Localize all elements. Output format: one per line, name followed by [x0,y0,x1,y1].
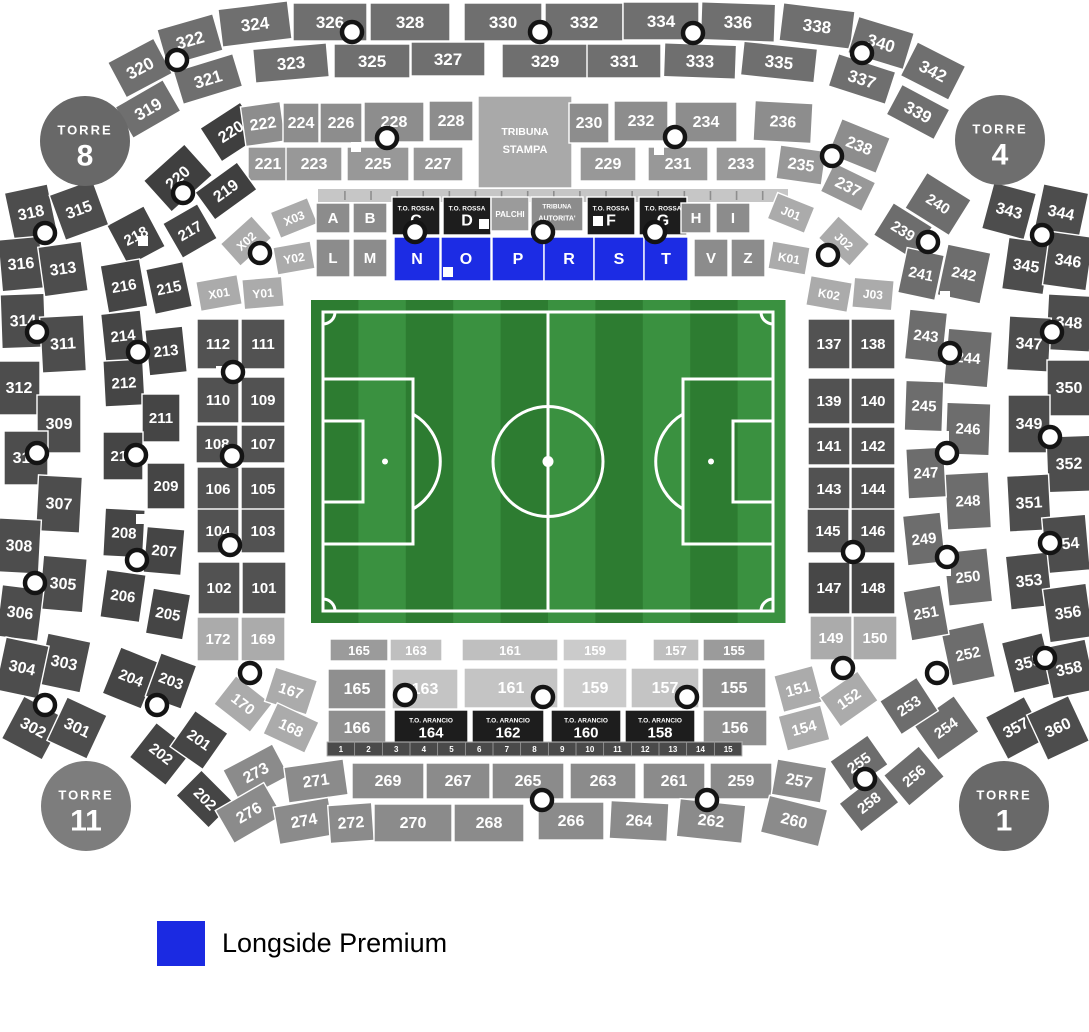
svg-text:H: H [691,210,702,227]
svg-text:TRIBUNA: TRIBUNA [501,126,549,138]
svg-text:269: 269 [375,773,402,790]
svg-text:323: 323 [276,53,306,74]
gate-marker [530,22,550,42]
svg-text:206: 206 [109,586,136,606]
section-144-147: 144 [851,467,895,511]
svg-text:327: 327 [434,50,462,69]
svg-text:110: 110 [206,392,230,409]
entrance-notch [443,267,453,277]
section-x01-121: X01 [196,275,243,312]
svg-text:311: 311 [50,335,77,353]
svg-text:234: 234 [693,114,720,131]
legend-swatch [157,921,205,966]
legend-label: Longside Premium [222,928,447,959]
section-313-68: 313 [38,241,89,297]
section-172-152: 172 [197,617,239,661]
torre-11: TORRE11 [41,761,131,851]
section-151-159: 151 [774,665,822,712]
section-222-24: 222 [240,101,285,146]
svg-text:325: 325 [358,52,386,71]
section-232-31: 232 [614,101,668,141]
svg-text:224: 224 [288,115,315,132]
gate-marker [940,343,960,363]
svg-text:159: 159 [582,680,609,697]
svg-text:248: 248 [955,492,981,510]
svg-text:308: 308 [5,537,33,555]
section-343-101: 343 [982,182,1037,240]
svg-text:TRIBUNA: TRIBUNA [542,204,572,211]
svg-text:332: 332 [570,13,598,32]
section-323-14: 323 [253,43,330,83]
section-152-160: 152 [820,671,878,727]
section-338-9: 338 [779,3,855,49]
svg-text:PALCHI: PALCHI [495,210,524,219]
svg-text:236: 236 [769,113,797,131]
svg-text:207: 207 [151,542,177,561]
section-160-197: T.O. ARANCIO160 [551,710,621,746]
section-z-181: Z [731,239,765,277]
section-235-42: 235 [776,145,826,185]
svg-text:N: N [411,251,423,268]
gate-marker [240,663,260,683]
svg-text:F: F [606,213,616,230]
svg-text:106: 106 [205,481,230,498]
section-111-129: 111 [241,319,285,369]
section-316-67: 316 [0,236,44,291]
gate-marker [852,43,872,63]
gate-marker [937,547,957,567]
section-213-51: 213 [145,326,188,376]
svg-text:233: 233 [728,156,755,173]
section-228-28: 228 [429,101,473,141]
svg-text:145: 145 [815,523,840,540]
svg-text:264: 264 [625,812,653,830]
section-245-89: 245 [904,380,944,431]
svg-text:328: 328 [396,13,424,32]
svg-text:169: 169 [250,631,275,648]
section-315-66: 315 [49,180,109,241]
entrance-notch [479,219,489,229]
svg-text:165: 165 [344,681,371,698]
section-233-41: 233 [716,147,766,181]
svg-text:316: 316 [7,255,35,274]
football-pitch [311,300,786,623]
section-106-134: 106 [197,467,239,511]
svg-text:T.O. ROSSA: T.O. ROSSA [449,206,486,213]
section-143-146: 143 [808,467,850,511]
gate-marker [220,535,240,555]
gate-marker [147,695,167,715]
svg-text:259: 259 [728,773,755,790]
section-169-153: 169 [241,617,285,661]
gate-marker [222,446,242,466]
section-139-142: 139 [808,378,850,424]
svg-text:150: 150 [862,630,887,647]
gate-marker [937,443,957,463]
gate-marker [1035,648,1055,668]
svg-text:T.O. ARANCIO: T.O. ARANCIO [564,718,608,725]
svg-text:265: 265 [515,773,542,790]
section-212-52: 212 [103,359,145,407]
svg-text:245: 245 [911,398,937,416]
section-138-141: 138 [851,319,895,369]
svg-text:349: 349 [1016,416,1043,433]
svg-text:266: 266 [558,813,585,830]
svg-text:112: 112 [206,336,230,353]
svg-text:326: 326 [316,13,344,32]
section-141-144: 141 [808,427,850,465]
section-107-133: 107 [241,425,285,463]
svg-text:209: 209 [153,478,178,495]
gate-marker [645,222,665,242]
section-331-18: 331 [587,44,661,78]
svg-text:172: 172 [205,631,230,648]
section-221-35: 221 [248,147,288,181]
svg-text:329: 329 [531,52,559,71]
gate-marker [855,769,875,789]
svg-text:335: 335 [764,52,794,74]
gate-marker [405,222,425,242]
section-257-208: 257 [771,759,826,803]
section-158-198: T.O. ARANCIO158 [625,710,695,746]
svg-text:155: 155 [723,643,745,658]
svg-text:306: 306 [6,603,35,623]
section-308-75: 308 [0,518,41,574]
entrance-notch [351,142,361,152]
svg-text:TORRE: TORRE [58,788,113,803]
svg-text:213: 213 [153,342,180,362]
svg-text:162: 162 [495,725,520,742]
svg-text:V: V [706,250,716,267]
svg-text:270: 270 [400,815,427,832]
section-164-195: T.O. ARANCIO164 [394,710,468,746]
gate-marker [533,687,553,707]
svg-text:144: 144 [860,481,886,498]
svg-text:A: A [328,210,339,227]
section-103-137: 103 [241,509,285,553]
svg-text:272: 272 [337,814,365,833]
section-150-158: 150 [853,616,897,660]
section-229-39: 229 [580,147,636,181]
svg-text:11: 11 [613,745,622,754]
svg-text:TORRE: TORRE [972,122,1027,137]
svg-text:11: 11 [70,805,102,838]
section-332-6: 332 [545,3,623,41]
section-272-211: 272 [328,803,375,844]
svg-text:351: 351 [1015,494,1043,512]
gate-marker [342,22,362,42]
section-l-172: L [316,239,350,277]
section-163-183: 163 [390,639,442,661]
svg-text:156: 156 [722,720,749,737]
svg-text:246: 246 [955,421,981,439]
gate-marker [128,342,148,362]
svg-text:7: 7 [505,745,510,754]
svg-text:105: 105 [250,481,275,498]
svg-text:P: P [513,251,524,268]
section-165-182: 165 [330,639,388,661]
svg-text:8: 8 [77,140,94,173]
section-248-90: 248 [945,472,992,530]
svg-text:2: 2 [366,745,371,754]
entrance-notch [654,145,664,155]
gate-marker [532,790,552,810]
section-360-117: 360 [1027,696,1089,761]
entrance-notch [940,291,950,301]
legend: Longside Premium [157,921,447,966]
svg-text:B: B [365,210,376,227]
svg-text:Y01: Y01 [252,286,275,302]
svg-text:1: 1 [996,805,1013,838]
section-y02-120: Y02 [273,241,315,275]
section-324-2: 324 [218,1,292,47]
gate-marker [173,183,193,203]
section-225-37: 225 [347,147,409,181]
svg-text:157: 157 [665,643,687,658]
section-206-58: 206 [100,569,146,622]
section-276-209: 276 [215,783,282,844]
svg-text:243: 243 [913,327,940,347]
section-p-176[interactable]: P [492,237,544,281]
gate-marker [533,222,553,242]
svg-text:143: 143 [816,481,841,498]
svg-text:312: 312 [6,380,33,397]
gate-marker [833,658,853,678]
svg-text:336: 336 [723,13,752,33]
svg-text:102: 102 [206,580,231,597]
svg-text:TORRE: TORRE [976,788,1031,803]
svg-text:229: 229 [595,156,622,173]
gate-marker [1040,533,1060,553]
section-165-188: 165 [328,669,386,709]
svg-text:147: 147 [816,580,841,597]
svg-text:148: 148 [860,580,885,597]
svg-text:166: 166 [344,720,371,737]
svg-text:309: 309 [46,416,73,433]
section-356-113: 356 [1042,583,1089,643]
section-159-191: 159 [563,668,627,708]
gate-marker [1042,322,1062,342]
section-d-165: T.O. ROSSAD [443,197,491,235]
section-350-107: 350 [1047,360,1089,416]
section-216-48: 216 [100,259,148,313]
svg-text:223: 223 [301,156,328,173]
svg-text:159: 159 [584,643,606,658]
section-329-17: 329 [502,44,588,78]
svg-text:250: 250 [955,568,982,588]
section-218-46: 218 [107,206,166,266]
svg-text:353: 353 [1015,572,1043,592]
entrance-notch [138,236,148,246]
section-148-151: 148 [851,562,895,614]
svg-text:262: 262 [697,812,725,832]
gate-marker [918,232,938,252]
section-v-180: V [694,239,728,277]
svg-text:T.O. ROSSA: T.O. ROSSA [593,206,630,213]
section-105-135: 105 [241,467,285,511]
section-269-202: 269 [352,763,424,799]
row-number-strip: 123456789101112131415 [327,742,742,756]
svg-text:228: 228 [438,113,465,130]
section-i-171: I [716,203,750,233]
svg-text:T.O. ARANCIO: T.O. ARANCIO [486,718,530,725]
svg-text:T.O. ROSSA: T.O. ROSSA [645,206,682,213]
section-156-199: 156 [703,710,767,746]
svg-text:L: L [328,250,337,267]
svg-text:103: 103 [250,523,275,540]
section-223-36: 223 [286,147,342,181]
gate-marker [35,223,55,243]
section-b-163: B [353,203,387,233]
gate-marker [250,243,270,263]
svg-text:J03: J03 [862,287,883,303]
section-149-157: 149 [810,616,852,660]
section-157-186: 157 [653,639,699,661]
svg-text:8: 8 [532,745,537,754]
section-palchi-166: PALCHI [491,197,529,231]
stadium-seatmap-page: 3203223243263283303323343363383403423193… [0,0,1089,1032]
torre-4: TORRE4 [955,95,1045,185]
section-x03-118: X03 [270,198,318,239]
gate-marker [822,146,842,166]
section-h-170: H [681,203,711,233]
svg-text:268: 268 [476,815,503,832]
section-224-25: 224 [283,103,319,143]
gate-marker [27,443,47,463]
section-312-71: 312 [0,361,40,415]
section-a-162: A [316,203,350,233]
svg-text:6: 6 [477,745,482,754]
gate-marker [697,790,717,810]
section-263-205: 263 [570,763,636,799]
svg-text:226: 226 [328,115,355,132]
section-333-19: 333 [663,43,736,79]
svg-text:160: 160 [573,725,598,742]
svg-text:Z: Z [743,250,752,267]
section-311-70: 311 [40,315,87,373]
svg-text:138: 138 [860,336,885,353]
svg-text:331: 331 [610,52,638,71]
gate-marker [927,663,947,683]
svg-text:D: D [461,213,473,230]
svg-text:163: 163 [405,643,427,658]
svg-text:352: 352 [1055,456,1082,474]
section-327-16: 327 [411,42,485,76]
svg-text:232: 232 [628,113,655,130]
svg-text:157: 157 [652,680,679,697]
section-y01-122: Y01 [242,276,284,309]
svg-text:155: 155 [721,680,748,697]
svg-text:I: I [731,210,735,227]
entrance-notch [136,514,146,524]
svg-text:261: 261 [661,773,688,790]
section-251-95: 251 [903,585,949,641]
svg-text:211: 211 [149,410,173,427]
svg-text:9: 9 [560,745,565,754]
svg-text:161: 161 [498,680,525,697]
svg-text:141: 141 [816,438,841,455]
svg-text:12: 12 [641,745,650,754]
section-102-138: 102 [198,562,240,614]
section-161-184: 161 [462,639,558,661]
gate-marker [843,542,863,562]
gate-marker [665,127,685,147]
svg-text:R: R [563,251,575,268]
svg-text:140: 140 [860,393,885,410]
svg-text:161: 161 [499,643,521,658]
gate-marker [167,50,187,70]
svg-text:221: 221 [255,156,282,173]
section-265-204: 265 [492,763,564,799]
section-230-30: 230 [569,103,609,143]
section-236-33: 236 [753,101,813,144]
svg-text:324: 324 [240,13,271,35]
section-267-203: 267 [426,763,490,799]
section-328-4: 328 [370,3,450,41]
svg-text:165: 165 [348,643,370,658]
gate-marker [25,573,45,593]
section-209-55: 209 [147,463,185,509]
svg-text:107: 107 [250,436,275,453]
section-j03-127: J03 [852,277,894,310]
svg-text:142: 142 [860,438,885,455]
svg-text:158: 158 [647,725,672,742]
svg-text:212: 212 [111,374,137,392]
svg-text:164: 164 [418,725,444,742]
svg-text:338: 338 [802,15,832,37]
svg-text:T: T [661,251,671,268]
svg-text:T.O. ARANCIO: T.O. ARANCIO [409,718,453,725]
section-142-145: 142 [851,427,895,465]
svg-text:247: 247 [913,464,939,482]
svg-text:227: 227 [425,156,452,173]
svg-text:350: 350 [1056,380,1083,397]
gate-marker [1032,225,1052,245]
svg-text:231: 231 [665,156,692,173]
gate-marker [677,687,697,707]
gate-marker [223,362,243,382]
section-307-74: 307 [36,475,83,533]
entrance-notch [939,431,949,441]
svg-text:TORRE: TORRE [57,123,112,138]
svg-text:267: 267 [445,773,472,790]
section-stampa-29: TRIBUNASTAMPA [478,96,572,188]
svg-text:10: 10 [585,745,594,754]
section-k02-126: K02 [806,276,853,313]
svg-text:307: 307 [45,495,73,513]
section-r-177[interactable]: R [544,237,594,281]
svg-text:347: 347 [1015,335,1043,353]
svg-text:15: 15 [724,745,733,754]
svg-text:4: 4 [992,139,1009,172]
section-155-187: 155 [703,639,765,661]
section-170-154: 170 [214,676,272,733]
stadium-map: 3203223243263283303323343363383403423193… [0,0,1089,912]
section-264-215: 264 [609,801,669,842]
svg-text:T.O. ARANCIO: T.O. ARANCIO [638,718,682,725]
svg-text:101: 101 [251,580,276,597]
section-155-193: 155 [702,668,766,708]
section-s-178[interactable]: S [594,237,644,281]
svg-text:263: 263 [590,773,617,790]
section-205-59: 205 [145,588,190,640]
svg-text:149: 149 [818,630,843,647]
svg-text:139: 139 [816,393,841,410]
section-162-196: T.O. ARANCIO162 [472,710,544,746]
section-166-194: 166 [328,710,386,746]
svg-text:305: 305 [49,575,77,594]
section-t-179[interactable]: T [644,237,688,281]
